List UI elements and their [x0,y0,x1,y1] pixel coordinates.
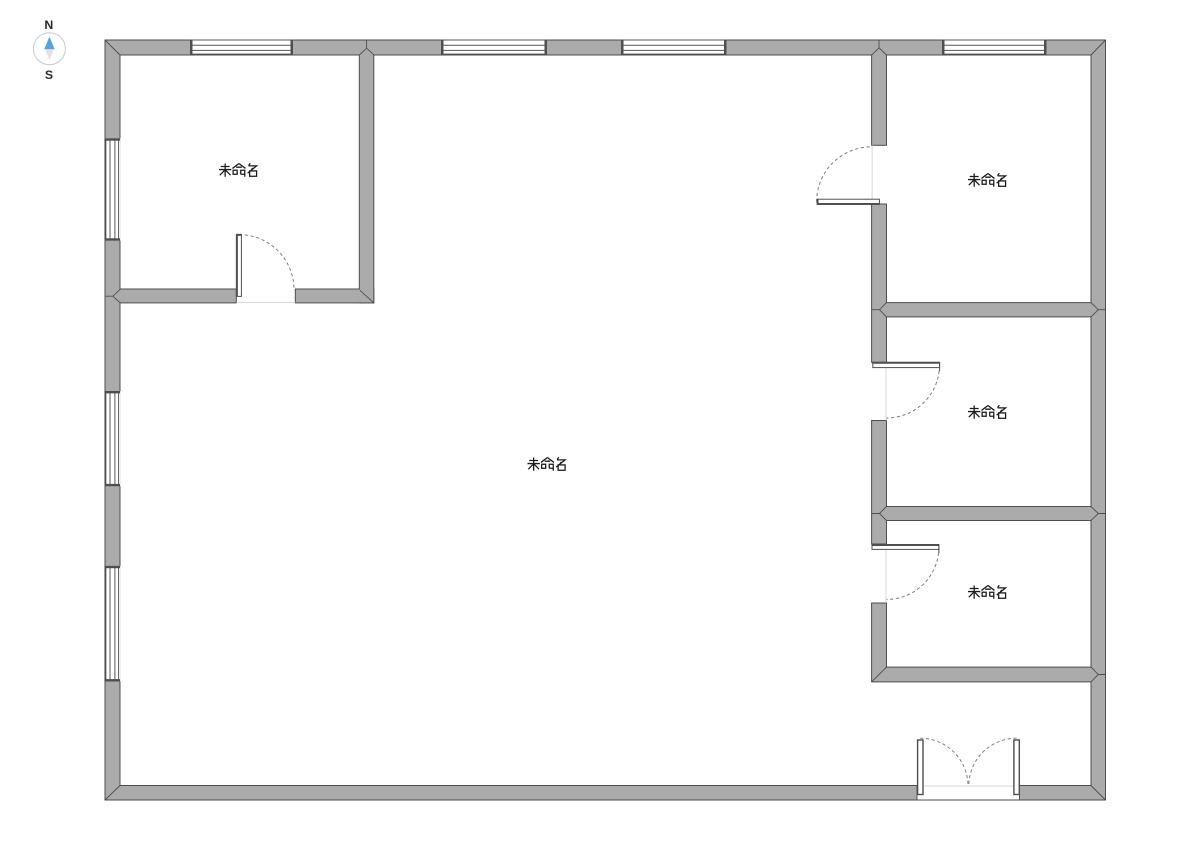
svg-text:N: N [44,18,53,32]
svg-text:S: S [45,68,53,82]
